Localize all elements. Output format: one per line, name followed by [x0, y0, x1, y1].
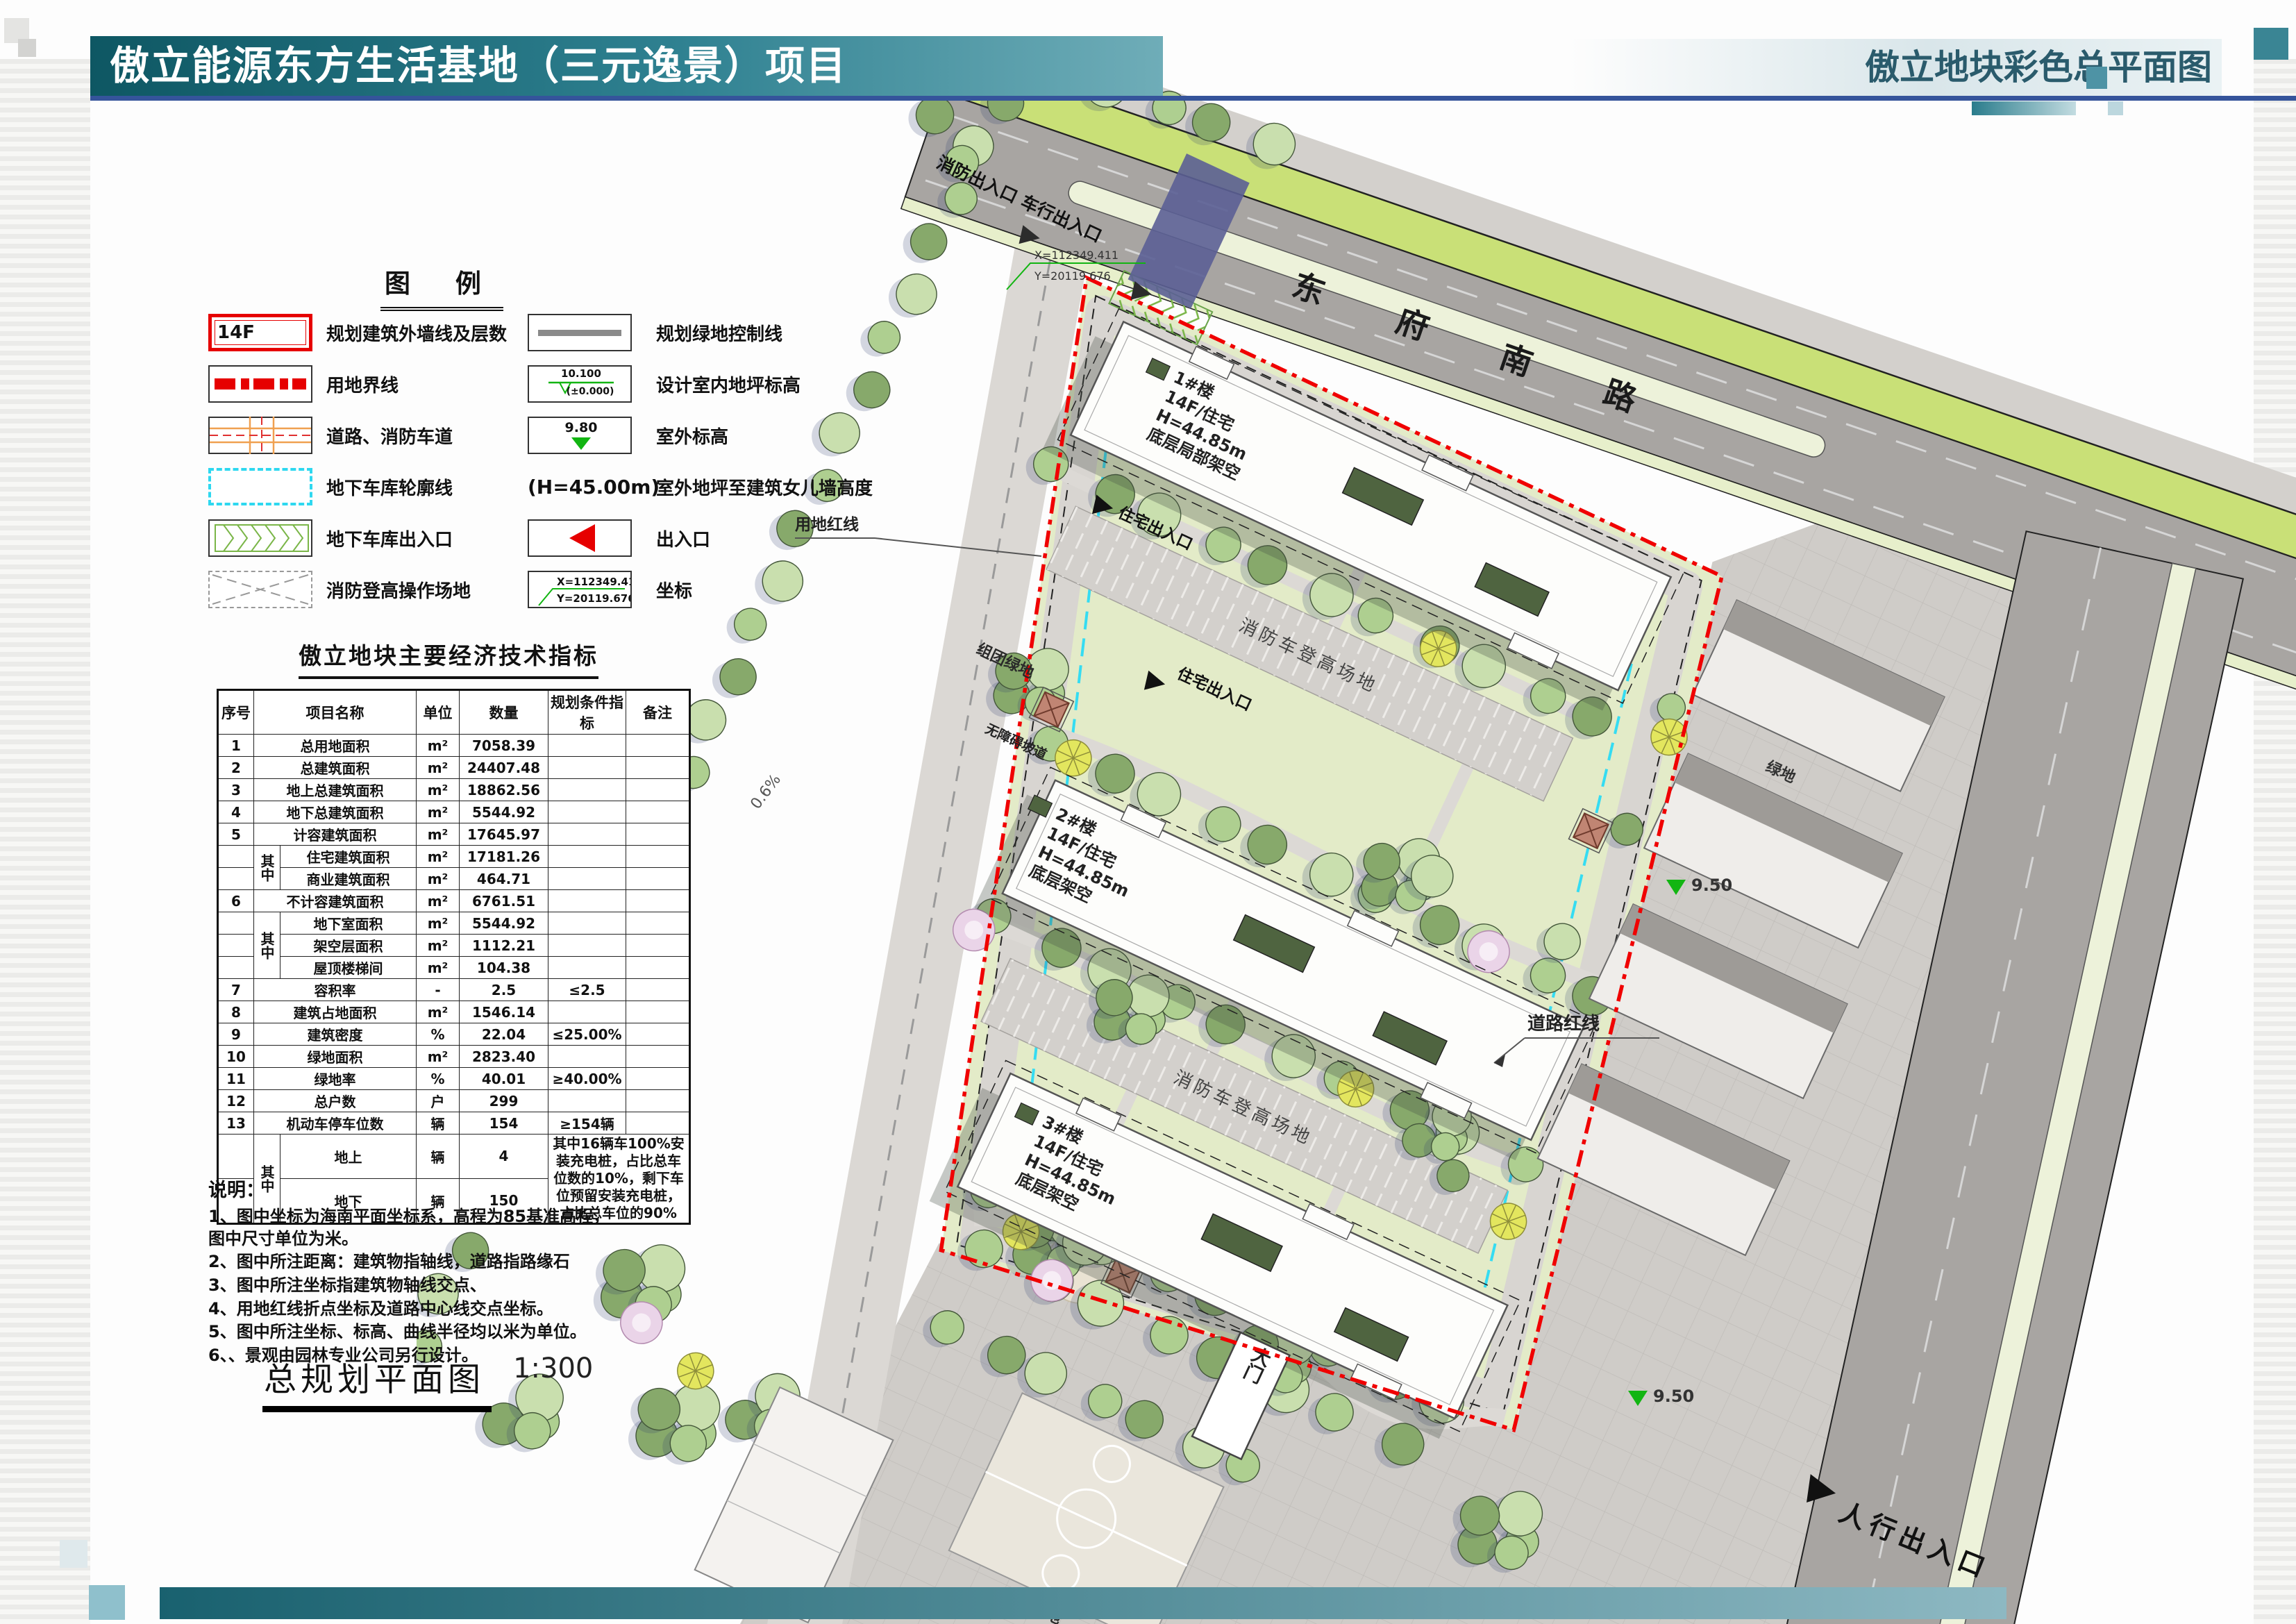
table-row: 8建筑占地面积m²1546.14	[218, 1001, 690, 1023]
coord-x-sample: X=112349.411	[557, 576, 630, 588]
plan-scale: 1:300	[513, 1353, 593, 1384]
note-item: 1、图中坐标为海南平面坐标系，高程为85基准高程，图中尺寸单位为米。	[208, 1206, 611, 1250]
legend-symbol-garage-outline	[208, 468, 312, 505]
green-control-line-icon	[538, 330, 621, 336]
garage-entrance-icon	[210, 519, 311, 557]
left-margin-stripes	[0, 59, 90, 1624]
footer-deco-square	[60, 1540, 87, 1568]
coords-icon: X=112349.411 Y=20119.676	[529, 571, 630, 608]
notes: 说明： 1、图中坐标为海南平面坐标系，高程为85基准高程，图中尺寸单位为米。 2…	[208, 1175, 611, 1368]
table-row: 其中地下室面积m²5544.92	[218, 912, 690, 935]
coord-y-sample: Y=20119.676	[556, 592, 630, 605]
outdoor-level-value: 9.80	[565, 420, 598, 435]
table-title: 傲立地块主要经济技术指标	[299, 637, 598, 679]
legend-label: 地下车库轮廓线	[326, 474, 528, 500]
legend-label: 规划建筑外墙线及层数	[326, 320, 528, 346]
table-row: 10绿地面积m²2823.40	[218, 1046, 690, 1068]
legend-label: 用地界线	[326, 371, 528, 397]
outdoor-level-icon: 9.80	[529, 417, 630, 454]
site-plan: 东 府 南 路 消防	[417, 59, 2296, 1624]
entrance-icon	[529, 519, 630, 557]
sheet-subtitle: 傲立地块彩色总平面图	[1569, 39, 2222, 96]
land-boundary-line-icon	[215, 378, 306, 390]
table-row: 商业建筑面积m²464.71	[218, 868, 690, 890]
header-deco-strip	[1972, 101, 2076, 115]
corner-deco-square	[2254, 28, 2288, 60]
coord-y: Y=20119.676	[1034, 269, 1111, 283]
legend-label: 道路、消防车道	[326, 423, 528, 449]
col-header: 备注	[626, 690, 690, 735]
col-header: 项目名称	[254, 690, 417, 735]
elevation-value: 9.50	[1691, 876, 1732, 895]
header-deco-square	[2086, 67, 2107, 89]
legend-symbol-entrance	[528, 519, 632, 557]
legend-14f-text: 14F	[212, 322, 255, 343]
legend-label: 规划绿地控制线	[656, 320, 899, 346]
legend-label: 室外标高	[656, 423, 899, 449]
legend-label: 设计室内地坪标高	[656, 371, 899, 397]
sheet-title: 傲立能源东方生活基地（三元逸景）项目	[110, 43, 847, 89]
road-redline-label: 道路红线	[1527, 1013, 1600, 1035]
legend-symbol-road	[208, 417, 312, 454]
table-row: 2总建筑面积m²24407.48	[218, 757, 690, 779]
table-header-row: 序号 项目名称 单位 数量 规划条件指标 备注	[218, 690, 690, 735]
plan-rotated-group: 东 府 南 路 消防	[417, 59, 2296, 1624]
table-row: 架空层面积m²1112.21	[218, 935, 690, 957]
header-rule	[90, 96, 2296, 101]
coord-x: X=112349.411	[1034, 249, 1118, 262]
footer-bar	[160, 1587, 2006, 1619]
note-item: 3、图中所注坐标指建筑物轴线交点、	[208, 1275, 611, 1297]
legend-label: 出入口	[656, 526, 899, 551]
table-row: 13机动车停车位数辆154≥154辆	[218, 1112, 690, 1135]
table-row: 9建筑密度%22.04≤25.00%	[218, 1023, 690, 1046]
notes-title: 说明：	[208, 1175, 611, 1202]
plan-title-block: 总规划平面图 1:300	[262, 1353, 593, 1412]
legend-title: 图 例	[380, 262, 503, 311]
road-icon	[210, 417, 311, 454]
table-row: 6不计容建筑面积m²6761.51	[218, 890, 690, 912]
legend-symbol-fire-field	[208, 571, 312, 608]
table-row: 11绿地率%40.01≥40.00%	[218, 1068, 690, 1090]
legend-label: 地下车库出入口	[326, 526, 528, 551]
table-row: 5计容建筑面积m²17645.97	[218, 823, 690, 846]
indoor-level-value: 10.100	[561, 367, 601, 380]
fire-field-icon	[210, 572, 311, 607]
table-row: 4地下总建筑面积m²5544.92	[218, 801, 690, 823]
legend-symbol-outdoor-level: 9.80	[528, 417, 632, 454]
legend-symbol-land-boundary	[208, 365, 312, 403]
drawing-sheet: { "header": { "title": "傲立能源东方生活基地（三元逸景）…	[0, 0, 2296, 1624]
footer-deco-square	[89, 1585, 125, 1620]
elevation-value: 9.50	[1653, 1387, 1694, 1406]
sheet-title-bar: 傲立能源东方生活基地（三元逸景）项目	[90, 36, 1163, 96]
legend-symbol-coords: X=112349.411 Y=20119.676	[528, 571, 632, 608]
legend-label: 消防登高操作场地	[326, 577, 528, 603]
legend-symbol-green-control	[528, 314, 632, 351]
table-row: 12总户数户299	[218, 1090, 690, 1112]
table-row: 7容积率-2.5≤2.5	[218, 979, 690, 1001]
table-row: 其中地上辆4其中16辆车100%安装充电桩，占比总车位数的10%，剩下车位预留安…	[218, 1135, 690, 1179]
col-header: 序号	[218, 690, 254, 735]
col-header: 数量	[460, 690, 548, 735]
legend-symbol-building-outline: 14F	[208, 314, 312, 351]
col-header: 规划条件指标	[548, 690, 626, 735]
legend: 14F 规划建筑外墙线及层数 规划绿地控制线 用地界线 10.100 (±0.0…	[208, 307, 899, 615]
economic-table: 序号 项目名称 单位 数量 规划条件指标 备注 1总用地面积m²7058.39 …	[217, 689, 691, 1225]
legend-symbol-indoor-level: 10.100 (±0.000)	[528, 365, 632, 403]
legend-symbol-garage-entrance	[208, 519, 312, 557]
legend-label: 室外地坪至建筑女儿墙高度	[656, 474, 899, 500]
col-header: 单位	[417, 690, 460, 735]
table-row: 3地上总建筑面积m²18862.56	[218, 779, 690, 801]
corner-deco-square	[18, 39, 36, 57]
legend-height-note: (H=45.00m)	[528, 476, 656, 499]
note-item: 5、图中所注坐标、标高、曲线半径均以米为单位。	[208, 1321, 611, 1343]
table-row: 屋顶楼梯间m²104.38	[218, 957, 690, 979]
zero-level-value: (±0.000)	[567, 386, 614, 397]
indoor-level-icon: 10.100 (±0.000)	[529, 365, 630, 403]
table-row: 其中住宅建筑面积m²17181.26	[218, 846, 690, 868]
sheet-subtitle-text: 傲立地块彩色总平面图	[1865, 47, 2212, 87]
table-row: 1总用地面积m²7058.39	[218, 735, 690, 757]
plan-title: 总规划平面图	[262, 1353, 492, 1412]
note-item: 2、图中所注距离：建筑物指轴线，道路指路缘石	[208, 1251, 611, 1273]
legend-label: 坐标	[656, 577, 899, 603]
slope-label: 0.6%	[747, 771, 785, 813]
note-item: 4、用地红线折点坐标及道路中心线交点坐标。	[208, 1298, 611, 1321]
header-deco-square	[2108, 101, 2123, 115]
